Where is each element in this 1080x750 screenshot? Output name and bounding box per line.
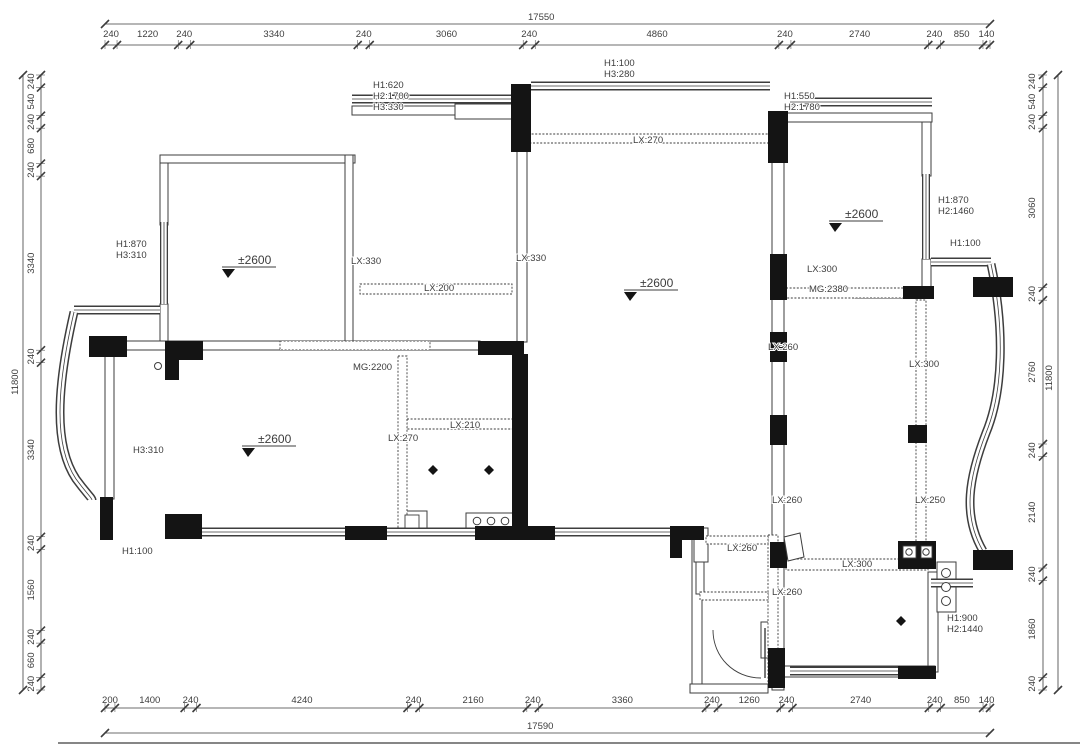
- dim-value: 3060: [1027, 197, 1038, 218]
- dim-total: 11800: [10, 369, 21, 395]
- annotation-label: LX:210: [450, 420, 480, 431]
- annotation-label: LX:260: [768, 342, 798, 353]
- dim-value: 240: [926, 29, 942, 40]
- annotation-label: LX:200: [424, 283, 454, 294]
- dim-value: 3340: [263, 29, 284, 40]
- drawing-sheet: 2401220240334024030602404860240274024085…: [0, 0, 1080, 750]
- dim-value: 1220: [137, 29, 158, 40]
- dim-value: 240: [26, 629, 37, 645]
- walls-layer: [60, 84, 1013, 693]
- column-block: [478, 341, 524, 355]
- column-block: [670, 540, 682, 558]
- column-block: [973, 277, 1013, 297]
- ceiling-dot: [896, 616, 906, 626]
- dim-value: 240: [26, 162, 37, 178]
- door-stop-circle: [155, 363, 162, 370]
- dim-value: 4860: [646, 29, 667, 40]
- dim-value: 240: [1027, 566, 1038, 582]
- level-value: ±2600: [640, 276, 674, 290]
- dim-value: 1400: [139, 695, 160, 706]
- dim-value: 1260: [739, 695, 760, 706]
- dim-value: 2160: [463, 695, 484, 706]
- level-value: ±2600: [238, 253, 272, 267]
- column-block: [768, 648, 785, 688]
- dim-value: 1560: [26, 579, 37, 600]
- column-block: [770, 542, 787, 568]
- dim-chain-left: 2405402406802403340240334024015602406602…: [10, 71, 45, 694]
- floor-plan-svg: 2401220240334024030602404860240274024085…: [0, 0, 1080, 750]
- dim-value: 850: [954, 29, 970, 40]
- dim-value: 240: [704, 695, 720, 706]
- column-block: [903, 286, 934, 299]
- annotation-label: LX:330: [516, 253, 546, 264]
- dim-total: 17550: [528, 12, 554, 23]
- level-marker: ±2600: [242, 432, 296, 457]
- annotation-label: H2:1780: [784, 102, 820, 113]
- dim-value: 140: [979, 29, 995, 40]
- annotation-label: LX:300: [842, 559, 872, 570]
- dim-value: 240: [1027, 73, 1038, 89]
- column-block: [670, 526, 704, 540]
- annotation-label: LX:250: [915, 495, 945, 506]
- dim-value: 240: [26, 114, 37, 130]
- column-block: [165, 514, 202, 539]
- dim-value: 2740: [849, 29, 870, 40]
- dim-value: 3360: [612, 695, 633, 706]
- stove-burner: [487, 517, 495, 525]
- radiator-coil: [942, 569, 951, 578]
- annotation-label: LX:270: [388, 433, 418, 444]
- dim-value: 3340: [26, 439, 37, 460]
- annotation-label: H1:100: [122, 546, 153, 557]
- dim-value: 240: [927, 695, 943, 706]
- annotation-label: H2:1460: [938, 206, 974, 217]
- column-block: [973, 550, 1013, 570]
- floor-drain: [923, 549, 929, 555]
- dim-chain-right: 2405402403060240276024021402401860240118…: [1027, 71, 1062, 694]
- column-block: [165, 341, 203, 360]
- annotation-label: MG:2200: [353, 362, 392, 373]
- annotation-label: LX:260: [727, 543, 757, 554]
- column-block: [345, 526, 387, 540]
- level-value: ±2600: [258, 432, 292, 446]
- dim-value: 240: [176, 29, 192, 40]
- dim-value: 240: [103, 29, 119, 40]
- annotation-label: H2:1700: [373, 91, 409, 102]
- fixture-box: [405, 515, 419, 528]
- dim-value: 240: [779, 695, 795, 706]
- dim-value: 3340: [26, 253, 37, 274]
- column-block: [908, 425, 927, 443]
- dim-value: 240: [1027, 114, 1038, 130]
- dim-value: 240: [1027, 676, 1038, 692]
- annotation-label: LX:330: [351, 256, 381, 267]
- annotation-label: H1:100: [604, 58, 635, 69]
- dim-value: 240: [777, 29, 793, 40]
- column-block: [898, 666, 936, 679]
- dim-value: 200: [102, 695, 118, 706]
- level-value: ±2600: [845, 207, 879, 221]
- stove-burner: [473, 517, 481, 525]
- dim-value: 850: [954, 695, 970, 706]
- dim-value: 540: [26, 94, 37, 110]
- dim-value: 540: [1027, 94, 1038, 110]
- level-marker: ±2600: [222, 253, 276, 278]
- dim-total: 11800: [1044, 365, 1055, 391]
- annotation-label: LX:300: [807, 264, 837, 275]
- dim-value: 240: [26, 676, 37, 692]
- stove-burner: [501, 517, 509, 525]
- dim-value: 3060: [436, 29, 457, 40]
- annotation-label: H3:280: [604, 69, 635, 80]
- bay-window-left: [60, 312, 92, 500]
- column-block: [770, 254, 787, 300]
- dim-value: 240: [183, 695, 199, 706]
- annotation-label: LX:260: [772, 587, 802, 598]
- dim-value: 140: [979, 695, 995, 706]
- annotation-label: H1:100: [950, 238, 981, 249]
- level-marker: ±2600: [624, 276, 678, 301]
- column-block: [770, 415, 787, 445]
- annotation-label: MG:2380: [809, 284, 848, 295]
- annotation-label: H1:620: [373, 80, 404, 91]
- dim-value: 240: [406, 695, 422, 706]
- annotation-label: H2:1440: [947, 624, 983, 635]
- annotation-label: LX:260: [772, 495, 802, 506]
- level-marker: ±2600: [829, 207, 883, 232]
- dim-value: 240: [1027, 442, 1038, 458]
- dim-value: 4240: [291, 695, 312, 706]
- entry-door-arc: [713, 628, 765, 678]
- radiator-coil: [942, 597, 951, 606]
- annotation-label: H1:870: [116, 239, 147, 250]
- column-block: [165, 360, 179, 380]
- column-block: [768, 111, 788, 163]
- ceiling-dot: [484, 465, 494, 475]
- dim-value: 240: [26, 535, 37, 551]
- dim-chain-bottom: 2001400240424024021602403360240126024027…: [101, 695, 994, 737]
- bath-door-leaf: [784, 533, 804, 561]
- dim-value: 680: [26, 138, 37, 154]
- dim-value: 2760: [1027, 362, 1038, 383]
- annotation-label: H1:550: [784, 91, 815, 102]
- dim-value: 240: [525, 695, 541, 706]
- column-block: [89, 336, 127, 357]
- ceiling-dot: [428, 465, 438, 475]
- dim-value: 2740: [850, 695, 871, 706]
- annotation-label: H3:310: [133, 445, 164, 456]
- dim-value: 240: [26, 349, 37, 365]
- dim-chain-top: 2401220240334024030602404860240274024085…: [101, 12, 994, 49]
- annotation-label: LX:300: [909, 359, 939, 370]
- floor-drain: [906, 549, 912, 555]
- annotation-label: H1:870: [938, 195, 969, 206]
- annotation-label: LX:270: [633, 135, 663, 146]
- dim-value: 240: [1027, 286, 1038, 302]
- dim-total: 17590: [527, 721, 553, 732]
- dim-value: 660: [26, 652, 37, 668]
- column-block: [512, 354, 528, 530]
- dim-value: 2140: [1027, 502, 1038, 523]
- dim-value: 240: [521, 29, 537, 40]
- annotation-label: H3:310: [116, 250, 147, 261]
- fixtures-layer: [58, 363, 1080, 744]
- dim-value: 240: [26, 73, 37, 89]
- annotation-label: H3:330: [373, 102, 404, 113]
- column-block: [100, 497, 113, 540]
- column-block: [475, 526, 555, 540]
- dim-value: 240: [356, 29, 372, 40]
- dim-value: 1860: [1027, 618, 1038, 639]
- column-block: [511, 84, 531, 152]
- annotation-label: H1:900: [947, 613, 978, 624]
- radiator-coil: [942, 583, 951, 592]
